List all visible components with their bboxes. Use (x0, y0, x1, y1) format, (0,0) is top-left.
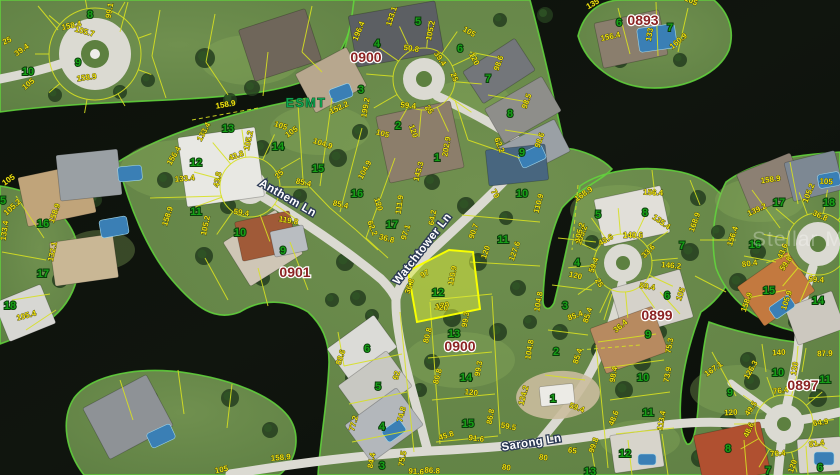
lot-number-label: 13 (222, 123, 234, 135)
pool (638, 454, 656, 465)
tree (675, 55, 682, 62)
tree (554, 326, 562, 334)
dimension-label: 87.9 (817, 349, 834, 359)
lot-number-label: 3 (358, 84, 364, 96)
lot-number-label: 15 (763, 285, 775, 297)
lot-number-label: 11 (190, 206, 202, 218)
lot-number-label: 12 (619, 448, 631, 460)
dimension-label: 146.2 (661, 260, 682, 271)
lot-number-label: 10 (234, 227, 246, 239)
tree (587, 237, 594, 244)
house (56, 149, 122, 201)
lot-number-label: 8 (87, 9, 93, 21)
block-label-0899: 0899 (641, 307, 672, 323)
lot-number-label: 11 (497, 234, 509, 246)
lot-number-label: 7 (485, 73, 491, 85)
lot-number-label: 14 (460, 372, 473, 384)
tree (732, 276, 741, 285)
lot-number-label: 11 (819, 374, 831, 386)
lot-number-label: 4 (379, 421, 386, 433)
dimension-label: 120 (434, 302, 449, 313)
lot-number-label: 2 (395, 120, 401, 132)
lot-number-label: 9 (727, 387, 733, 399)
dimension-label: 80 (538, 452, 549, 462)
lot-number-label: 4 (574, 257, 581, 269)
lot-number-label: 17 (386, 219, 398, 231)
lot-number-label: 1 (434, 152, 440, 164)
lot-number-label: 5 (375, 381, 381, 393)
lot-number-label: 5 (595, 209, 601, 221)
dimension-label: 59.4 (808, 274, 825, 284)
lot-number-label: 12 (190, 157, 202, 169)
tree (332, 152, 341, 161)
tree (159, 174, 167, 182)
dimension-label: 91.6 (408, 466, 425, 475)
easement-label: ESMT (286, 96, 327, 110)
lot-number-label: 9 (75, 57, 81, 69)
tree (264, 424, 272, 432)
lot-number-label: 11 (642, 407, 654, 419)
lot-number-label: 10 (516, 188, 528, 200)
lot-number-label: 9 (519, 147, 525, 159)
lot-number-label: 6 (616, 17, 622, 29)
lot-number-label: 3 (379, 460, 385, 472)
lot-number-label: 17 (773, 197, 785, 209)
dimension-label: 120 (464, 387, 479, 397)
lot-number-label: 1 (550, 393, 556, 405)
block-label-0901: 0901 (279, 264, 310, 280)
dimension-label: 86.8 (424, 465, 441, 475)
lot-number-label: 7 (765, 465, 771, 475)
block-label-0893: 0893 (627, 12, 658, 28)
dimension-label: 105 (819, 177, 833, 187)
lot-number-label: 17 (37, 268, 49, 280)
watermark: Stellar MLS (752, 228, 840, 251)
tree (713, 227, 720, 234)
tree (492, 326, 501, 335)
lot-number-label: 9 (645, 329, 651, 341)
dimension-label: 140.6 (623, 231, 644, 240)
lot-number-label: 6 (364, 343, 370, 355)
parcel-map-canvas[interactable]: 2539.410599.1158.4105.7158.9105105.2158.… (0, 0, 840, 475)
block-label-0900-bottom: 0900 (444, 338, 475, 354)
dimension-label: 91.6 (468, 433, 485, 444)
lot-number-label: 10 (22, 66, 34, 78)
lot-number-label: 7 (679, 240, 685, 252)
pool (117, 165, 142, 182)
lot-number-label: 16 (351, 188, 363, 200)
tree (742, 354, 750, 362)
dimension-label: 133.4 (174, 173, 195, 184)
dimension-label: 80 (501, 462, 512, 472)
tree (50, 90, 57, 97)
dimension-label: 76.4 (770, 448, 787, 458)
lot-number-label: 10 (772, 367, 784, 379)
dimension-label: 65 (567, 445, 578, 455)
dimension-label: 120 (724, 408, 738, 418)
house (610, 429, 665, 474)
lot-number-label: 10 (637, 372, 649, 384)
dimension-label: 59.4 (400, 100, 417, 110)
tree (246, 82, 254, 90)
lot-number-label: 5 (0, 195, 6, 207)
block-label-0900-top: 0900 (350, 49, 381, 65)
tree (539, 9, 547, 17)
tree (198, 250, 207, 259)
lot-number-label: 8 (507, 108, 513, 120)
lot-number-label: 8 (642, 207, 648, 219)
lot-number-label: 6 (817, 462, 823, 474)
dimension-label: 140 (772, 348, 786, 358)
lot-number-label: 16 (37, 218, 49, 230)
lot-number-label: 6 (664, 290, 670, 302)
lot-number-label: 7 (667, 22, 673, 34)
house (49, 234, 119, 286)
tree (495, 15, 502, 22)
lot-number-label: 18 (4, 300, 16, 312)
lot-number-label: 13 (584, 466, 596, 475)
lot-number-label: 6 (457, 43, 463, 55)
tree (525, 317, 532, 324)
tree (460, 200, 469, 209)
lot-number-label: 15 (312, 163, 324, 175)
lot-number-label: 9 (280, 245, 286, 257)
tree (618, 384, 627, 393)
lot-number-label: 5 (415, 16, 421, 28)
lot-number-label: 15 (462, 418, 474, 430)
dimension-label: 158.9 (270, 452, 291, 463)
lot-number-label: 18 (823, 197, 835, 209)
tree (426, 176, 434, 184)
lot-number-label: 8 (725, 443, 731, 455)
tree (143, 75, 150, 82)
lot-number-label: 3 (562, 300, 568, 312)
block-label-0897: 0897 (787, 377, 818, 393)
tree (352, 292, 360, 300)
dimension-label: 156.4 (643, 187, 664, 197)
tree (327, 295, 334, 302)
lot-number-label: 12 (432, 287, 444, 299)
lot-number-label: 14 (272, 141, 285, 153)
lot-number-label: 2 (553, 346, 559, 358)
lot-number-label: 14 (812, 295, 825, 307)
tree (512, 282, 520, 290)
